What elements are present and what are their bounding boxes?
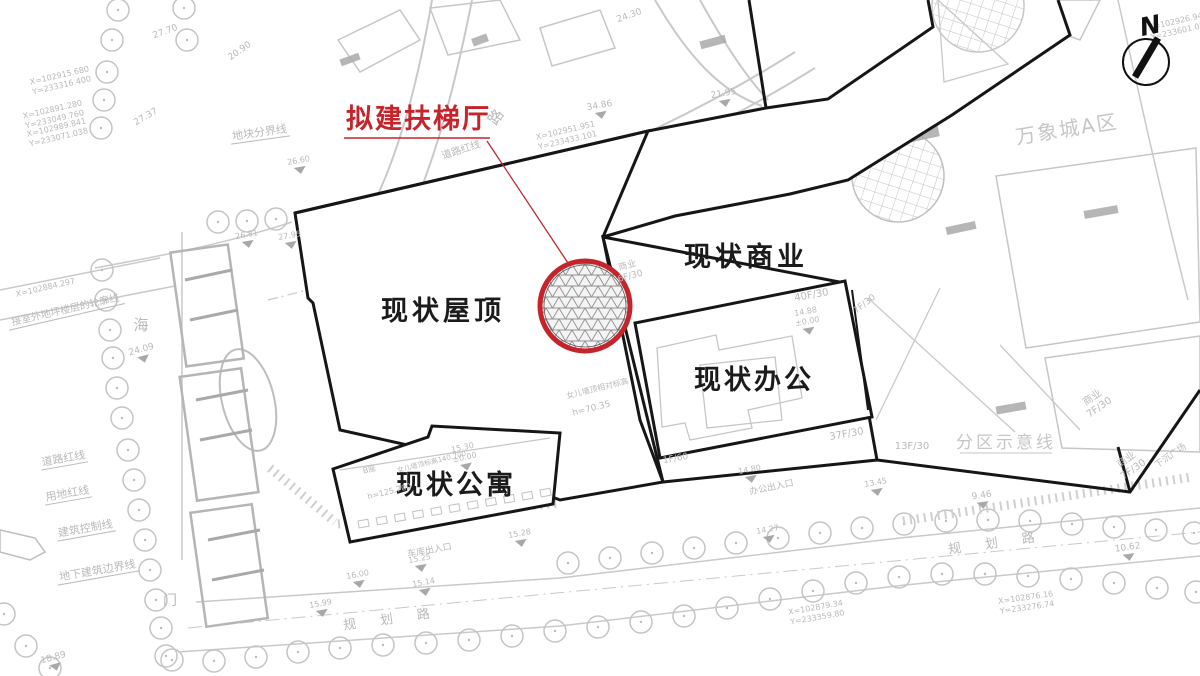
map-annotation-text: 规 划 路 — [342, 604, 441, 633]
tree-center-dot — [898, 576, 900, 578]
map-annotation-text: 下沉广场 — [1152, 440, 1188, 470]
tree-center-dot — [217, 221, 219, 223]
map-annotation-text: 20.90 — [226, 40, 253, 63]
map-annotation: 16.00 — [346, 568, 372, 590]
tree-center-dot — [735, 542, 737, 544]
tree-center-dot — [339, 647, 341, 649]
map-annotation: 9.46 — [971, 490, 994, 511]
tree-center-dot — [155, 599, 157, 601]
tree-center-dot — [1155, 529, 1157, 531]
tree-center-dot — [121, 417, 123, 419]
tree-center-dot — [100, 127, 102, 129]
map-annotation-text: 21.95 — [710, 87, 737, 101]
label-zoning-line-group: 分区示意线 — [956, 433, 1056, 453]
map-annotation: 24.09 — [128, 342, 158, 366]
compass-needle-icon — [1135, 38, 1158, 77]
tree-center-dot — [425, 642, 427, 644]
tree-center-dot — [693, 547, 695, 549]
tree-center-dot — [213, 660, 215, 662]
map-annotation: 海 — [133, 316, 148, 334]
elevation-flag-icon — [294, 166, 307, 175]
label-existing-commercial: 现状商业 — [684, 242, 808, 273]
map-annotation: X=102915.680Y=233316.400 — [28, 64, 92, 96]
map-annotation: 道路红线 — [440, 137, 482, 162]
map-annotation: X=102876.16Y=233276.74 — [997, 589, 1055, 616]
map-annotation-text: 26.81 — [235, 228, 259, 241]
tree-center-dot — [1195, 591, 1197, 593]
map-annotation-text: 海 — [133, 316, 148, 334]
tree-center-dot — [984, 573, 986, 575]
tree-icon — [0, 603, 15, 625]
map-annotation-text: 24.30 — [616, 7, 644, 25]
tree-center-dot — [941, 573, 943, 575]
elevation-flag-icon — [242, 240, 255, 249]
tree-icon — [173, 0, 195, 19]
map-annotation-text: 办公出入口 — [748, 477, 795, 498]
site-plan-drawing: 拟建扶梯厅 现状屋顶 现状商业 现状办公 现状公寓 万象城A区 分区示意线 道路… — [0, 0, 1200, 676]
tree-center-dot — [819, 532, 821, 534]
tree-center-dot — [112, 357, 114, 359]
map-annotation: 地下建筑边界线 — [55, 556, 140, 585]
tree-center-dot — [275, 218, 277, 220]
map-annotation: X=102884.297 — [15, 276, 76, 298]
tree-center-dot — [106, 71, 108, 73]
map-annotation: 规 划 路 — [342, 604, 441, 633]
label-zoning-line: 分区示意线 — [956, 433, 1056, 453]
tree-center-dot — [138, 509, 140, 511]
elevation-flag-icon — [415, 564, 428, 573]
map-annotation: 18.89 — [40, 650, 70, 674]
map-annotation-text: 地下建筑边界线 — [58, 556, 136, 583]
elevation-flag-icon — [871, 488, 884, 497]
map-annotation-text: 27.70 — [151, 23, 179, 41]
elevation-flag-icon — [285, 241, 298, 250]
map-annotation-text: 规 划 路 — [947, 528, 1046, 557]
map-annotation-text: 27.37 — [132, 106, 159, 128]
map-annotation: 13.45 — [864, 476, 890, 498]
map-annotation: 用地红线 — [43, 482, 92, 505]
tree-center-dot — [769, 598, 771, 600]
map-annotation: 办公出入口 — [748, 477, 795, 498]
map-annotation-text: 商业7F/30 — [1111, 446, 1148, 483]
compass-north-label: N — [1137, 9, 1164, 42]
tree-center-dot — [127, 449, 129, 451]
tree-center-dot — [597, 626, 599, 628]
tree-center-dot — [511, 635, 513, 637]
map-annotation: 门 — [163, 593, 177, 609]
map-annotation: 道路红线 — [39, 447, 88, 470]
elevation-flag-icon — [595, 111, 608, 120]
tree-center-dot — [777, 537, 779, 539]
map-annotation-text: 地块分界线 — [231, 121, 287, 143]
tree-center-dot — [25, 645, 27, 647]
tree-center-dot — [554, 630, 556, 632]
tree-center-dot — [117, 9, 119, 11]
tree-center-dot — [103, 99, 105, 101]
map-annotation-text: 34.86 — [586, 99, 613, 113]
tree-center-dot — [855, 582, 857, 584]
tree-center-dot — [1113, 526, 1115, 528]
map-annotation-text: 14.27 — [756, 523, 780, 536]
tree-center-dot — [111, 39, 113, 41]
map-annotation: 商业7F/30 — [1111, 446, 1148, 483]
tree-center-dot — [3, 613, 5, 615]
dense-text-blob — [945, 221, 976, 235]
map-annotation-text: 18.89 — [40, 650, 68, 666]
tree-icon — [1185, 581, 1200, 603]
map-annotation-text: 道路红线 — [40, 447, 86, 468]
tree-center-dot — [651, 552, 653, 554]
map-annotation-text: X=102915.680Y=233316.400 — [28, 64, 92, 96]
map-annotation-text: 10.62 — [1114, 541, 1141, 554]
map-annotation: 规 划 路 — [947, 528, 1046, 557]
map-annotation: 34.86 — [586, 99, 615, 121]
label-existing-office: 现状办公 — [694, 365, 814, 396]
tree-center-dot — [609, 557, 611, 559]
tree-center-dot — [1113, 582, 1115, 584]
map-annotation-text: 16.00 — [346, 568, 370, 581]
map-annotation: 15.28 — [508, 527, 534, 549]
map-annotation: 15.25 — [408, 552, 434, 574]
tree-center-dot — [945, 520, 947, 522]
tree-center-dot — [116, 387, 118, 389]
map-annotation-text: 13.45 — [864, 476, 888, 489]
elevation-flag-icon — [719, 99, 732, 108]
map-annotation: 地块分界线 — [229, 121, 290, 144]
elevation-flag-icon — [1123, 553, 1136, 562]
tree-center-dot — [468, 639, 470, 641]
tree-center-dot — [149, 569, 151, 571]
proposed-escalator-label: 拟建扶梯厅 — [346, 104, 491, 135]
dense-text-blob — [339, 53, 360, 66]
tree-center-dot — [297, 651, 299, 653]
map-annotation-text: 24.09 — [128, 342, 156, 358]
elevation-flag-icon — [419, 588, 432, 597]
tree-center-dot — [567, 562, 569, 564]
tree-center-dot — [640, 621, 642, 623]
elevation-flag-icon — [745, 475, 758, 484]
map-annotation: 20.90 — [226, 40, 253, 63]
map-annotation-text: 13F/30 — [895, 441, 930, 452]
tree-center-dot — [382, 644, 384, 646]
tree-center-dot — [1193, 532, 1195, 534]
tree-center-dot — [246, 220, 248, 222]
site-plan-canvas: 拟建扶梯厅 现状屋顶 现状商业 现状办公 现状公寓 万象城A区 分区示意线 道路… — [0, 0, 1200, 676]
tree-center-dot — [1027, 575, 1029, 577]
tree-center-dot — [255, 656, 257, 658]
dense-text-blob — [471, 34, 489, 47]
elevation-flag-icon — [316, 609, 329, 618]
map-annotation: 13F/30 — [895, 441, 930, 452]
map-annotation: 26.81 — [235, 228, 261, 250]
tree-center-dot — [49, 667, 51, 669]
tree-center-dot — [1156, 587, 1158, 589]
map-annotation: 27.37 — [132, 106, 159, 128]
tree-center-dot — [144, 539, 146, 541]
map-annotation: X=102879.34Y=233359.80 — [787, 598, 846, 626]
map-annotation-text: 用地红线 — [44, 482, 90, 503]
map-annotation-text: 15.28 — [508, 527, 532, 540]
map-annotation-text: X=102879.34Y=233359.80 — [787, 598, 846, 626]
map-annotation-text: 商业7F/30 — [1077, 384, 1114, 421]
tree-center-dot — [683, 615, 685, 617]
label-existing-roof: 现状屋顶 — [381, 296, 505, 327]
tree-center-dot — [171, 659, 173, 661]
tree-center-dot — [183, 7, 185, 9]
map-annotation: 21.95 — [710, 87, 738, 109]
tree-center-dot — [133, 479, 135, 481]
elevation-flag-icon — [353, 580, 366, 589]
map-annotation-text: 门 — [163, 593, 177, 609]
map-annotation-text: 9.46 — [971, 490, 993, 503]
label-mixc-district: 万象城A区 — [1014, 109, 1120, 149]
map-annotation-text: X=102876.16Y=233276.74 — [997, 589, 1055, 616]
map-annotation-text: 道路红线 — [440, 137, 482, 162]
tree-center-dot — [726, 607, 728, 609]
map-annotation-text: 26.60 — [287, 154, 311, 167]
map-annotation: 24.30 — [616, 7, 644, 25]
tree-center-dot — [109, 329, 111, 331]
tree-center-dot — [165, 655, 167, 657]
map-annotation: 下沉广场 — [1152, 440, 1188, 470]
tree-center-dot — [861, 527, 863, 529]
map-annotation: 26.60 — [287, 154, 313, 176]
map-annotation: 商业7F/30 — [1077, 384, 1114, 421]
tree-center-dot — [1070, 578, 1072, 580]
tree-center-dot — [160, 627, 162, 629]
map-annotation: 10.62 — [1114, 541, 1142, 562]
tree-center-dot — [812, 590, 814, 592]
dense-text-blob — [699, 35, 726, 49]
tree-center-dot — [1071, 523, 1073, 525]
tree-center-dot — [101, 269, 103, 271]
tree-center-dot — [1029, 520, 1031, 522]
elevation-flag-icon — [515, 539, 528, 548]
dense-text-blob — [1084, 205, 1119, 219]
label-existing-apartment: 现状公寓 — [396, 469, 516, 501]
map-annotation-text: 15.99 — [309, 597, 333, 610]
elevation-flag-icon — [763, 535, 776, 544]
tree-center-dot — [186, 39, 188, 41]
dense-text-blob — [996, 401, 1027, 414]
map-annotation-text: X=102884.297 — [15, 276, 76, 298]
map-annotation: 27.70 — [151, 23, 179, 41]
tree-center-dot — [987, 519, 989, 521]
map-annotation: 建筑控制线 — [55, 516, 116, 541]
